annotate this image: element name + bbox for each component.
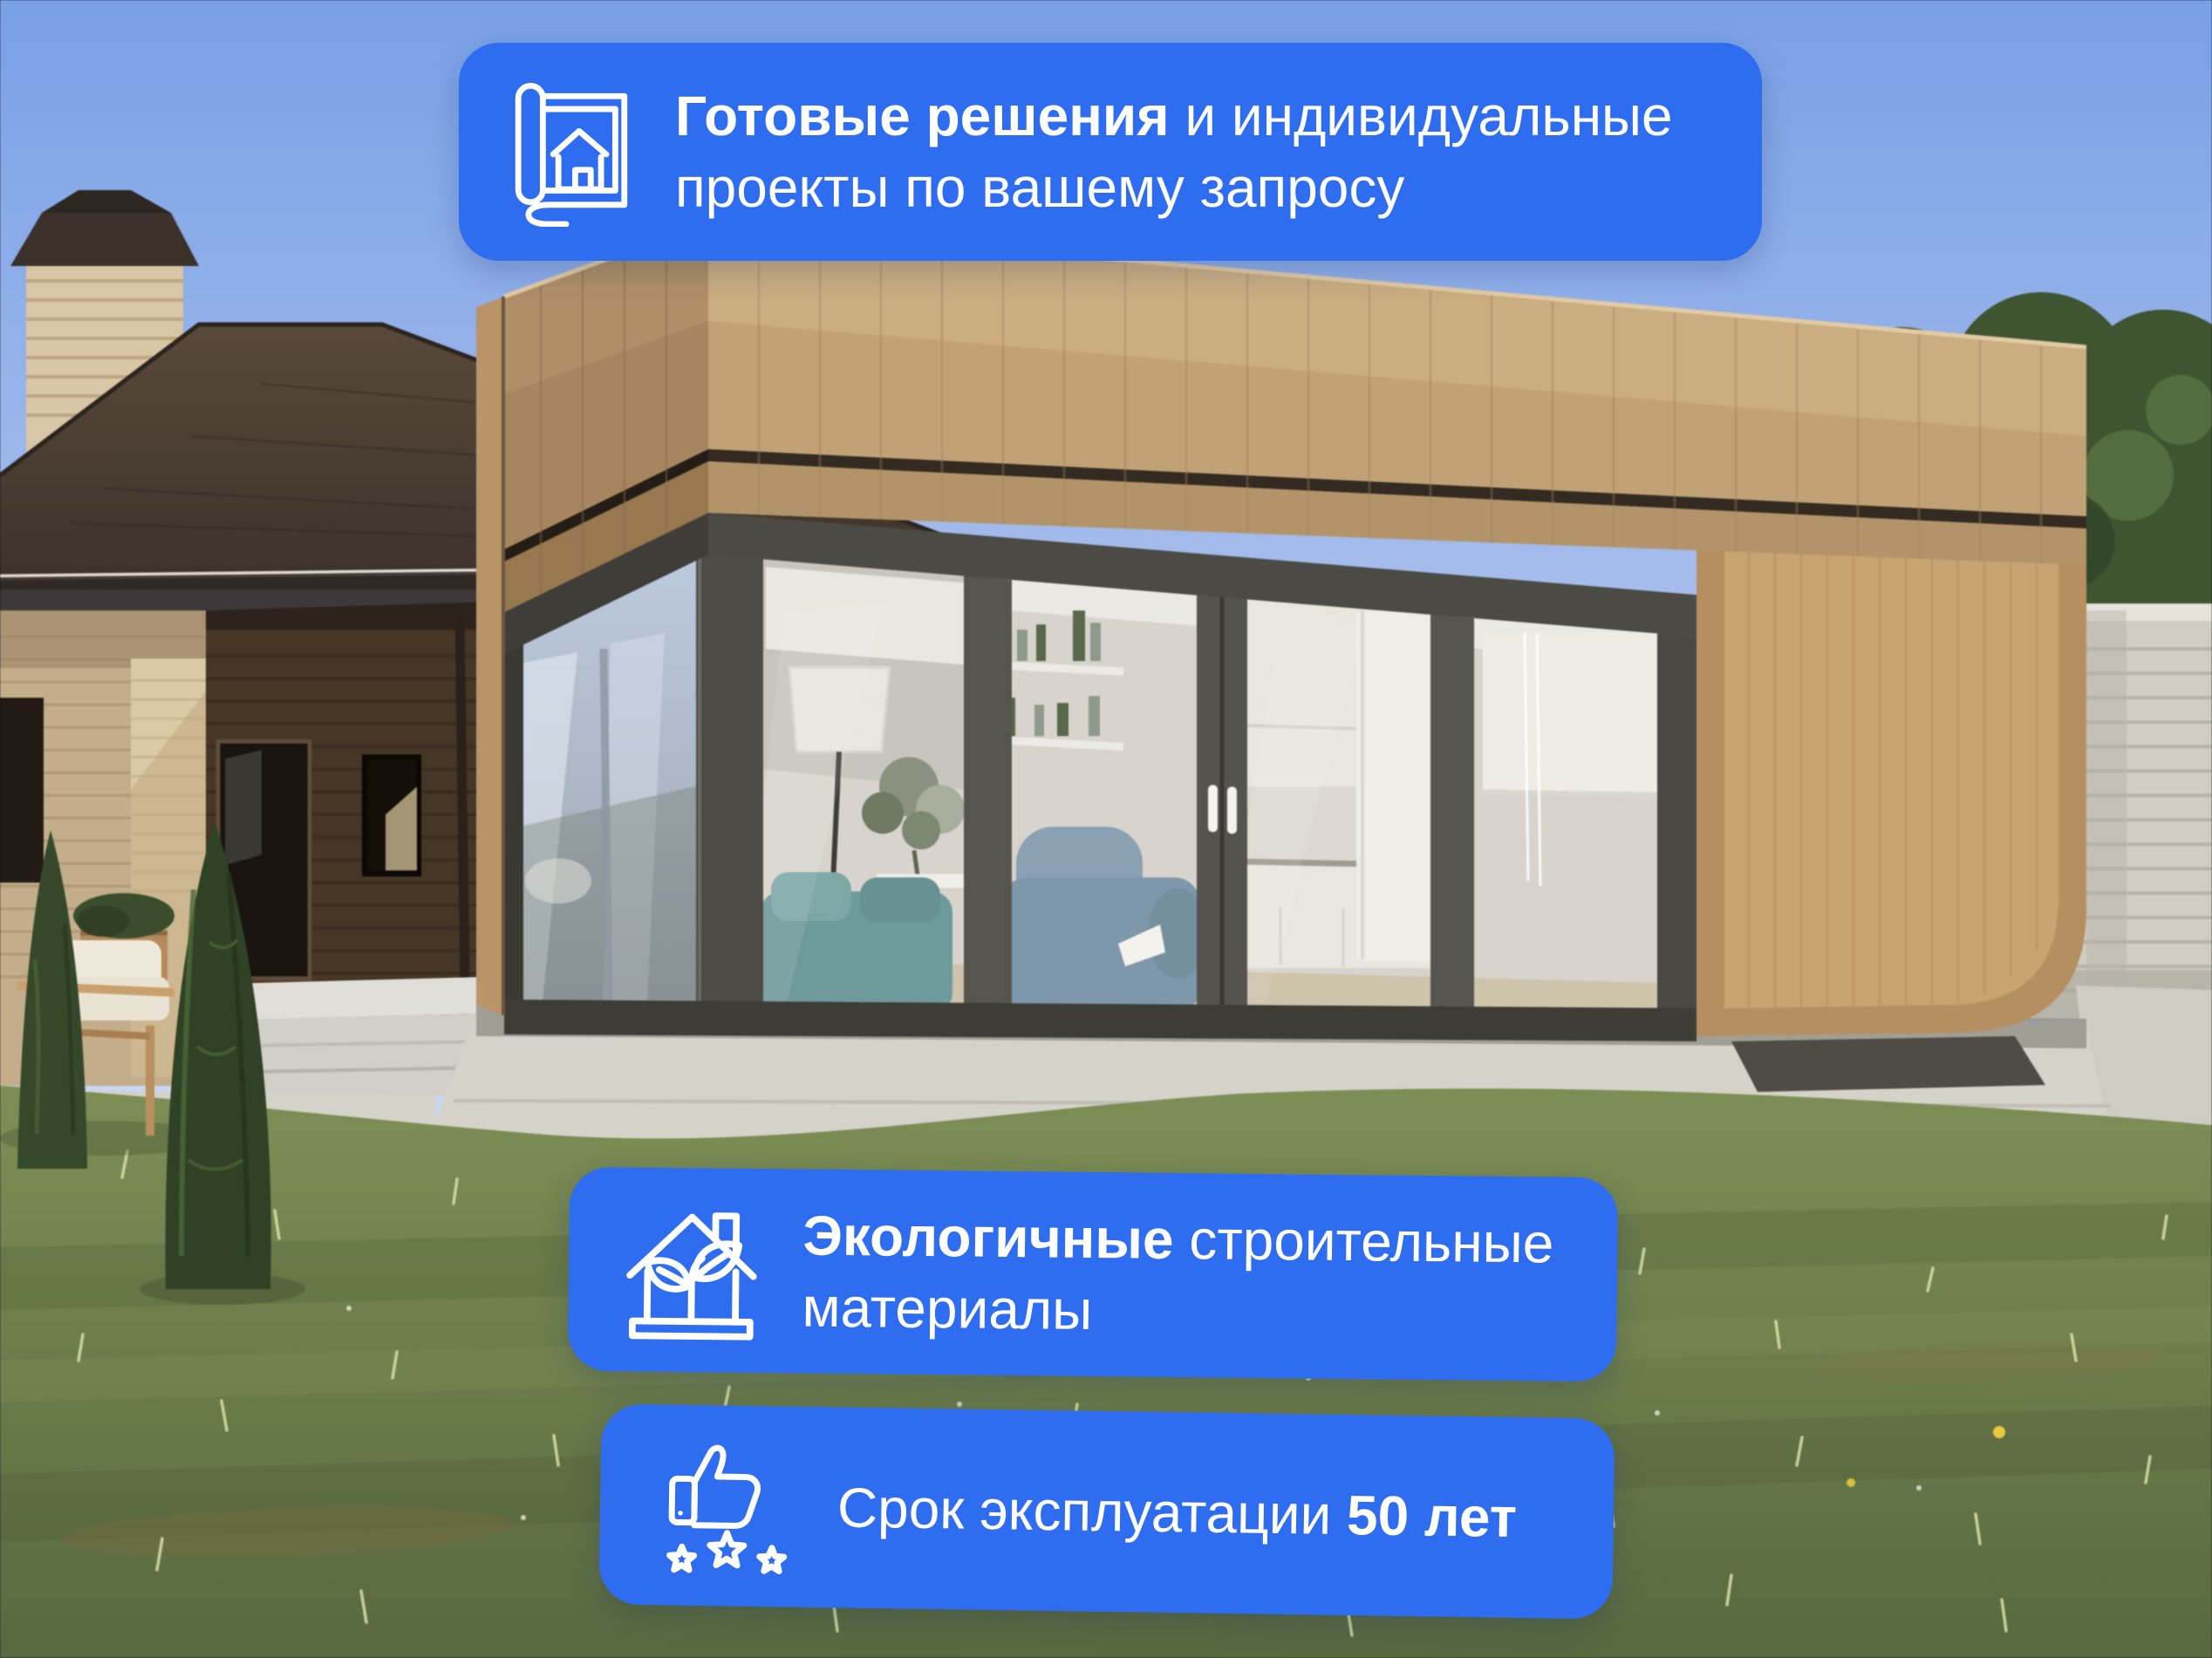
promo-image: Готовые решения и индивидуальные проекты…	[0, 0, 2212, 1658]
eco-house-sprout-icon	[617, 1194, 767, 1346]
badge-eco-text: Экологичные строительные материалы	[802, 1200, 1554, 1351]
badge-eco-materials: Экологичные строительные материалы	[568, 1167, 1618, 1382]
modular-cabin	[476, 218, 2086, 1041]
cabin-corner-post	[476, 297, 504, 1016]
badge-ready-line2: проекты по вашему запросу	[675, 152, 1673, 223]
dandelion-flower	[1847, 1478, 1855, 1487]
badge-ready-text: Готовые решения и индивидуальные проекты…	[675, 80, 1673, 223]
dandelion-flower	[1993, 1426, 2005, 1438]
blueprint-house-icon	[506, 77, 637, 227]
thumbs-up-stars-icon	[660, 1425, 795, 1586]
badge-ready-line1: Готовые решения и индивидуальные	[675, 80, 1673, 152]
badge-eco-line2: материалы	[802, 1272, 1553, 1351]
badge-lifespan: Срок эксплуатации 50 лет	[598, 1403, 1615, 1619]
door-mat	[1731, 1036, 2045, 1092]
badge-eco-line1: Экологичные строительные	[802, 1200, 1554, 1279]
door-handle	[1227, 787, 1237, 834]
badge-ready-solutions: Готовые решения и индивидуальные проекты…	[459, 43, 1762, 261]
door-handle	[1208, 785, 1218, 832]
badge-lifespan-text: Срок эксплуатации 50 лет	[836, 1471, 1517, 1553]
